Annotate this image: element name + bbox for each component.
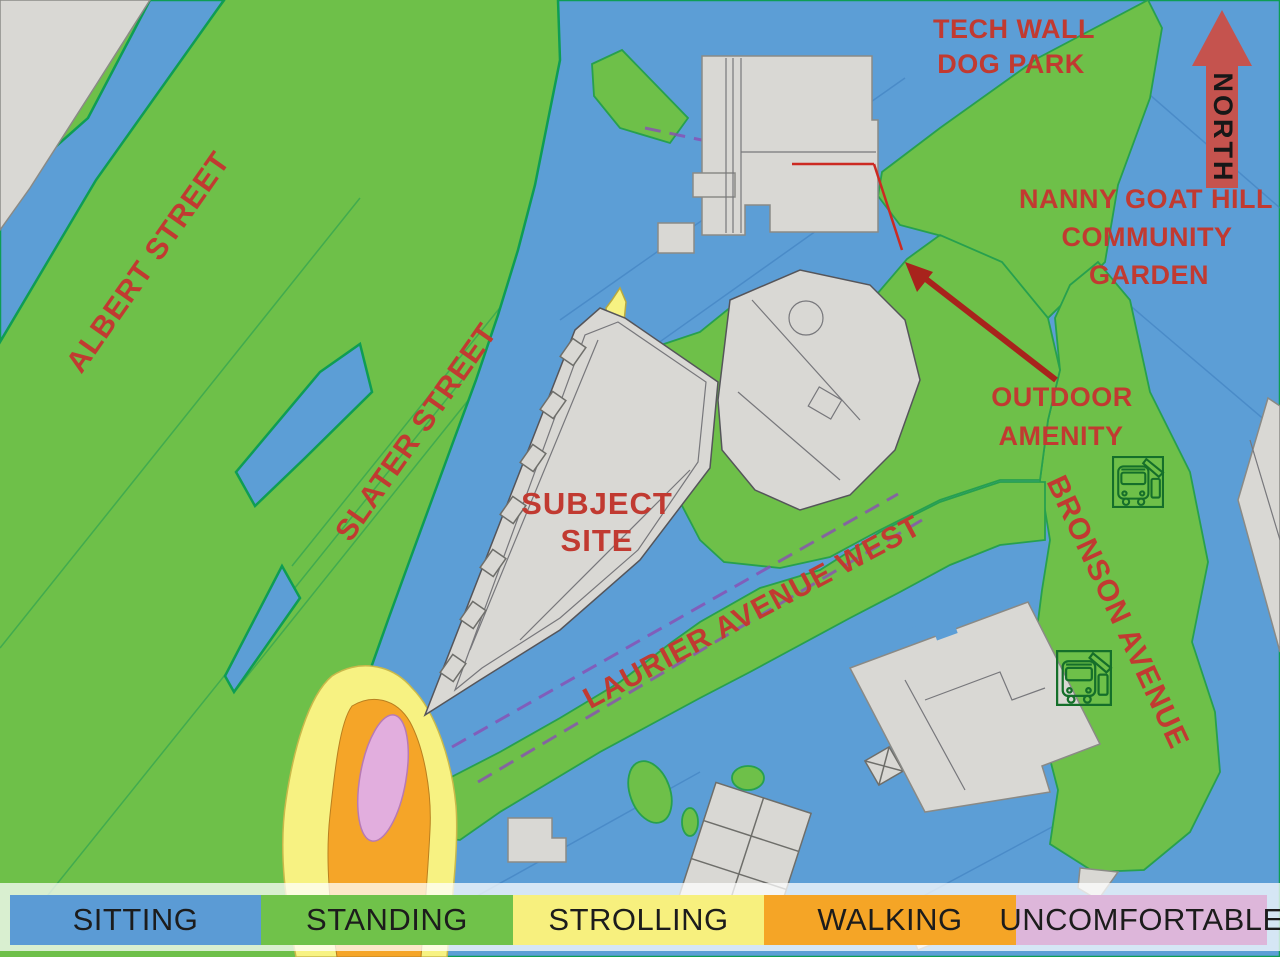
building-top-wing — [693, 173, 735, 197]
legend-label: WALKING — [817, 902, 962, 938]
label-nanny-1: NANNY GOAT HILL — [1019, 184, 1273, 214]
label-tech-wall-1: TECH WALL — [933, 14, 1095, 44]
legend-label: STROLLING — [548, 902, 728, 938]
wind-comfort-map: NORTH ALBERT STREET SLATER STREET LAURIE… — [0, 0, 1280, 957]
legend-item-uncomfortable: UNCOMFORTABLE — [1016, 895, 1267, 945]
building-top-stub — [658, 223, 694, 253]
legend-item-strolling: STROLLING — [513, 895, 764, 945]
label-outdoor-amenity-2: AMENITY — [999, 421, 1124, 451]
legend-label: STANDING — [306, 902, 468, 938]
label-tech-wall-2: DOG PARK — [937, 49, 1085, 79]
label-nanny-2: COMMUNITY — [1062, 222, 1233, 252]
map-canvas: NORTH ALBERT STREET SLATER STREET LAURIE… — [0, 0, 1280, 957]
legend-item-walking: WALKING — [764, 895, 1016, 945]
legend: SITTING STANDING STROLLING WALKING UNCOM… — [0, 883, 1280, 951]
legend-label: UNCOMFORTABLE — [999, 902, 1280, 938]
north-label: NORTH — [1208, 73, 1238, 184]
legend-item-sitting: SITTING — [10, 895, 261, 945]
label-subject-site-1: SUBJECT — [521, 486, 673, 521]
legend-item-standing: STANDING — [261, 895, 513, 945]
legend-label: SITTING — [73, 902, 199, 938]
building-top-centre — [702, 56, 878, 235]
standing-blob-3 — [682, 808, 698, 836]
label-subject-site-2: SITE — [561, 523, 634, 558]
label-nanny-3: GARDEN — [1089, 260, 1209, 290]
label-outdoor-amenity-1: OUTDOOR — [991, 382, 1133, 412]
standing-blob-2 — [732, 766, 764, 790]
